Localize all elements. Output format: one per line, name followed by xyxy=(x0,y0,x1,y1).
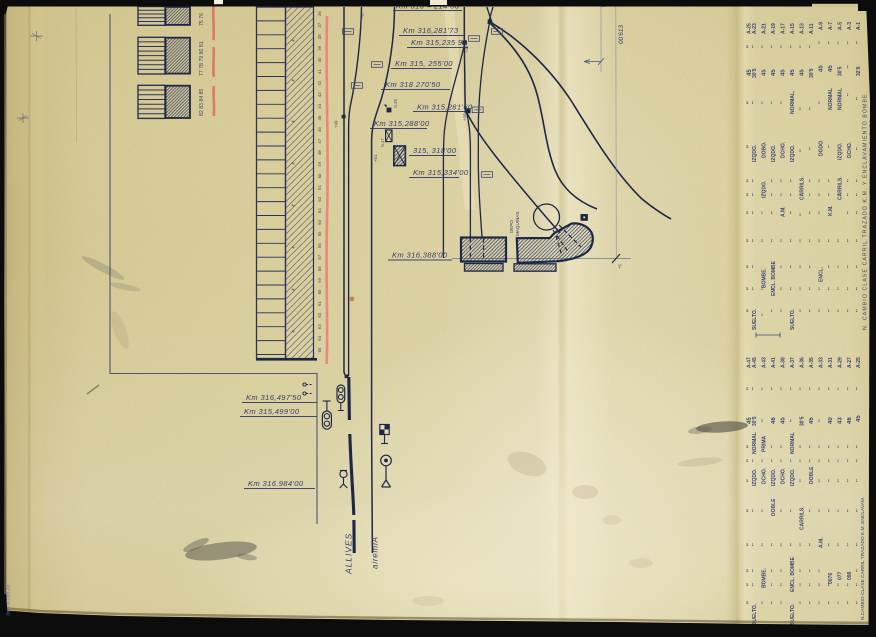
svg-text:30'5: 30'5 xyxy=(799,416,805,426)
svg-text:+5: +5 xyxy=(618,264,623,269)
svg-text:″: ″ xyxy=(819,193,825,196)
svg-text:43: 43 xyxy=(317,92,322,97)
svg-text:″: ″ xyxy=(747,543,753,546)
svg-text:″: ″ xyxy=(752,45,758,48)
svg-text:″: ″ xyxy=(800,459,806,462)
svg-text:″: ″ xyxy=(828,445,834,448)
svg-text:″: ″ xyxy=(781,239,787,242)
svg-text:″: ″ xyxy=(747,459,753,462)
svg-text:44: 44 xyxy=(317,103,322,108)
svg-text:″: ″ xyxy=(747,179,753,182)
svg-text:″: ″ xyxy=(762,419,768,422)
svg-text:DOBO.: DOBO. xyxy=(761,141,767,158)
svg-text:A-31: A-31 xyxy=(828,357,834,368)
svg-text:+43: +43 xyxy=(360,12,365,20)
svg-text:″: ″ xyxy=(838,479,844,482)
svg-text:″: ″ xyxy=(790,211,796,214)
svg-text:″: ″ xyxy=(847,65,853,68)
svg-text:″: ″ xyxy=(800,149,806,152)
svg-text:″: ″ xyxy=(752,211,758,214)
svg-text:″: ″ xyxy=(747,509,753,512)
svg-text:54: 54 xyxy=(317,219,322,224)
svg-text:A-3: A-3 xyxy=(847,22,853,30)
svg-text:″: ″ xyxy=(819,601,825,604)
svg-text:″: ″ xyxy=(828,583,834,586)
svg-text:″: ″ xyxy=(847,211,853,214)
svg-text:30'5: 30'5 xyxy=(837,66,843,76)
svg-text:″: ″ xyxy=(790,509,796,512)
svg-text:″: ″ xyxy=(856,193,862,196)
svg-text:″: ″ xyxy=(819,211,825,214)
svg-text:A-38: A-38 xyxy=(780,357,786,368)
svg-text:″: ″ xyxy=(847,583,853,586)
svg-text:″: ″ xyxy=(828,509,834,512)
svg-text:″: ″ xyxy=(838,601,844,604)
svg-text:″: ″ xyxy=(800,543,806,546)
svg-text:A-47: A-47 xyxy=(747,357,753,368)
svg-text:A-43: A-43 xyxy=(761,357,767,368)
svg-text:″: ″ xyxy=(800,309,806,312)
svg-text:″: ″ xyxy=(771,211,777,214)
svg-text:″: ″ xyxy=(809,45,815,48)
svg-text:″: ″ xyxy=(847,287,853,290)
svg-text:56: 56 xyxy=(317,243,322,248)
svg-text:75 76: 75 76 xyxy=(199,13,205,26)
svg-text:″: ″ xyxy=(752,265,758,268)
svg-text:Km 316,497'50: Km 316,497'50 xyxy=(246,393,302,402)
svg-text:″: ″ xyxy=(819,179,825,182)
svg-text:A-9: A-9 xyxy=(818,22,824,30)
svg-text:″: ″ xyxy=(762,193,768,196)
svg-text:A-36: A-36 xyxy=(799,357,805,368)
svg-text:″: ″ xyxy=(771,601,777,604)
svg-text:″: ″ xyxy=(771,543,777,546)
svg-text:″: ″ xyxy=(828,387,834,390)
svg-text:45: 45 xyxy=(747,69,753,76)
svg-text:Km 318 270'50: Km 318 270'50 xyxy=(385,80,441,89)
svg-text:Km 315,499'00: Km 315,499'00 xyxy=(244,407,300,416)
svg-text:″: ″ xyxy=(856,287,862,290)
svg-text:″: ″ xyxy=(847,309,853,312)
svg-text:″: ″ xyxy=(781,309,787,312)
svg-text:A-29: A-29 xyxy=(837,357,843,368)
svg-text:″: ″ xyxy=(781,569,787,572)
svg-text:A-45: A-45 xyxy=(752,357,758,368)
svg-text:″: ″ xyxy=(819,101,825,104)
svg-text:″: ″ xyxy=(819,239,825,242)
svg-text:098: 098 xyxy=(847,571,853,580)
svg-text:A-1: A-1 xyxy=(856,22,862,30)
svg-text:″: ″ xyxy=(771,309,777,312)
svg-text:″: ″ xyxy=(856,41,862,44)
svg-text:″: ″ xyxy=(747,309,753,312)
svg-text:″: ″ xyxy=(838,239,844,242)
svg-text:″: ″ xyxy=(847,479,853,482)
svg-text:″: ″ xyxy=(771,445,777,448)
svg-text:315, 318'00: 315, 318'00 xyxy=(413,146,457,155)
svg-text:Km 315, 255'00: Km 315, 255'00 xyxy=(395,59,453,68)
svg-text:45: 45 xyxy=(809,417,815,424)
svg-text:Km 316,388'00: Km 316,388'00 xyxy=(392,251,448,260)
svg-text:″: ″ xyxy=(838,387,844,390)
svg-text:″: ″ xyxy=(762,387,768,390)
svg-text:A-13: A-13 xyxy=(799,23,805,34)
svg-text:″: ″ xyxy=(847,239,853,242)
svg-text:SUELTO.: SUELTO. xyxy=(790,308,796,330)
svg-text:Km 316.984'00: Km 316.984'00 xyxy=(248,479,304,488)
svg-text:″: ″ xyxy=(762,313,768,316)
svg-text:A-7: A-7 xyxy=(828,22,834,30)
svg-text:37: 37 xyxy=(317,22,322,27)
svg-text:″: ″ xyxy=(809,309,815,312)
svg-text:″: ″ xyxy=(790,45,796,48)
svg-text:″: ″ xyxy=(790,583,796,586)
svg-text:Km 315,288'00: Km 315,288'00 xyxy=(374,119,430,128)
svg-text:″: ″ xyxy=(762,601,768,604)
svg-text:″: ″ xyxy=(771,101,777,104)
svg-text:49: 49 xyxy=(317,161,322,166)
svg-text:45: 45 xyxy=(747,417,753,424)
svg-text:″: ″ xyxy=(752,193,758,196)
svg-text:″: ″ xyxy=(828,543,834,546)
svg-text:3mo N.286-2a: 3mo N.286-2a xyxy=(5,585,11,616)
svg-text:″: ″ xyxy=(856,179,862,182)
svg-text:DCHO.: DCHO. xyxy=(780,141,786,158)
svg-text:″: ″ xyxy=(819,309,825,312)
svg-text:45: 45 xyxy=(790,69,796,76)
svg-text:30'5: 30'5 xyxy=(809,68,815,78)
svg-text:″: ″ xyxy=(762,211,768,214)
svg-text:45: 45 xyxy=(781,417,787,424)
svg-text:″: ″ xyxy=(856,265,862,268)
svg-text:″: ″ xyxy=(800,445,806,448)
svg-text:58: 58 xyxy=(317,266,322,271)
svg-text:″: ″ xyxy=(747,101,753,104)
svg-text:39: 39 xyxy=(317,45,322,50)
svg-text:A-33: A-33 xyxy=(818,357,824,368)
svg-text:″: ″ xyxy=(752,543,758,546)
svg-text:DOBLE: DOBLE xyxy=(809,466,815,484)
svg-text:″: ″ xyxy=(819,583,825,586)
svg-text:″: ″ xyxy=(747,445,753,448)
svg-text:A.M.: A.M. xyxy=(780,206,786,217)
svg-text:″: ″ xyxy=(771,179,777,182)
svg-text:″: ″ xyxy=(800,601,806,604)
svg-text:PRIMA: PRIMA xyxy=(761,436,767,453)
svg-text:″: ″ xyxy=(747,387,753,390)
svg-text:″: ″ xyxy=(809,387,815,390)
svg-text:″: ″ xyxy=(781,459,787,462)
svg-text:″: ″ xyxy=(828,309,834,312)
svg-text:″: ″ xyxy=(752,179,758,182)
svg-text:″: ″ xyxy=(800,107,806,110)
svg-text:36: 36 xyxy=(317,11,322,16)
svg-text:53: 53 xyxy=(317,208,322,213)
svg-text:″: ″ xyxy=(800,287,806,290)
svg-text:″: ″ xyxy=(856,97,862,100)
svg-text:″: ″ xyxy=(781,287,787,290)
svg-text:″: ″ xyxy=(790,459,796,462)
svg-text:″: ″ xyxy=(762,583,768,586)
svg-text:A-23: A-23 xyxy=(752,23,758,34)
svg-text:″: ″ xyxy=(828,145,834,148)
svg-text:″: ″ xyxy=(856,239,862,242)
svg-text:″: ″ xyxy=(771,387,777,390)
svg-text:″: ″ xyxy=(800,387,806,390)
svg-text:″: ″ xyxy=(781,193,787,196)
svg-text:″: ″ xyxy=(809,583,815,586)
svg-text:″: ″ xyxy=(800,213,806,216)
svg-text:51: 51 xyxy=(317,185,322,190)
svg-text:″: ″ xyxy=(800,193,806,196)
svg-text:″: ″ xyxy=(809,193,815,196)
svg-text:″: ″ xyxy=(838,509,844,512)
svg-text:45: 45 xyxy=(781,69,787,76)
svg-text:″: ″ xyxy=(856,387,862,390)
svg-text:62: 62 xyxy=(317,312,322,317)
svg-text:″: ″ xyxy=(809,601,815,604)
svg-text:″: ″ xyxy=(800,479,806,482)
svg-text:A-41: A-41 xyxy=(771,357,777,368)
svg-text:″: ″ xyxy=(809,569,815,572)
svg-text:50: 50 xyxy=(317,173,322,178)
svg-text:A-25: A-25 xyxy=(856,357,862,368)
svg-text:″: ″ xyxy=(809,287,815,290)
svg-text:+51: +51 xyxy=(373,154,378,162)
svg-text:45: 45 xyxy=(771,69,777,76)
svg-text:63: 63 xyxy=(317,324,322,329)
svg-text:N.CAMBIO CLASE CARRIL TRAZA: N.CAMBIO CLASE CARRIL TRAZADO K.M. ENCLA… xyxy=(860,497,866,620)
svg-text:82 83 84 85: 82 83 84 85 xyxy=(199,88,205,116)
svg-text:″: ″ xyxy=(847,265,853,268)
svg-text:″: ″ xyxy=(838,265,844,268)
svg-text:A-19: A-19 xyxy=(771,23,777,34)
svg-text:A-27: A-27 xyxy=(847,357,853,368)
svg-text:64: 64 xyxy=(317,335,322,340)
svg-text:″: ″ xyxy=(762,45,768,48)
svg-text:Km 316,281'73: Km 316,281'73 xyxy=(403,26,459,35)
svg-text:″: ″ xyxy=(819,479,825,482)
svg-text:48: 48 xyxy=(317,150,322,155)
svg-text:″: ″ xyxy=(771,583,777,586)
svg-text:″: ″ xyxy=(747,601,753,604)
svg-text:DCHO.: DCHO. xyxy=(847,141,853,158)
svg-text:″: ″ xyxy=(819,509,825,512)
svg-text:″: ″ xyxy=(828,287,834,290)
svg-text:47: 47 xyxy=(317,138,322,143)
svg-text:45: 45 xyxy=(819,65,825,72)
svg-text:″: ″ xyxy=(781,543,787,546)
svg-text:45: 45 xyxy=(317,115,322,120)
svg-text:57: 57 xyxy=(317,254,322,259)
svg-text:Km 315,235 98: Km 315,235 98 xyxy=(411,38,467,47)
svg-text:″: ″ xyxy=(771,459,777,462)
svg-text:″: ″ xyxy=(800,583,806,586)
svg-text:77 78 79 80 81: 77 78 79 80 81 xyxy=(199,41,205,76)
svg-text:″: ″ xyxy=(800,569,806,572)
svg-text:″: ″ xyxy=(762,459,768,462)
svg-text:″: ″ xyxy=(752,569,758,572)
svg-text:″: ″ xyxy=(790,387,796,390)
svg-text:0076: 0076 xyxy=(828,573,834,584)
svg-text:ENCL.: ENCL. xyxy=(818,266,824,282)
svg-text:″: ″ xyxy=(752,239,758,242)
svg-text:″: ″ xyxy=(819,459,825,462)
svg-text:″: ″ xyxy=(838,41,844,44)
svg-text:″: ″ xyxy=(781,583,787,586)
svg-text:″: ″ xyxy=(847,193,853,196)
svg-text:45: 45 xyxy=(762,69,768,76)
svg-text:″: ″ xyxy=(771,287,777,290)
svg-text:DOBLE: DOBLE xyxy=(771,498,777,516)
svg-text:DCHO.: DCHO. xyxy=(780,467,786,484)
svg-text:″: ″ xyxy=(800,239,806,242)
svg-text:″: ″ xyxy=(838,583,844,586)
svg-text:52: 52 xyxy=(317,196,322,201)
svg-text:BOMBE.: BOMBE. xyxy=(761,267,767,288)
svg-text:″: ″ xyxy=(762,509,768,512)
svg-text:″: ″ xyxy=(747,211,753,214)
svg-text:″: ″ xyxy=(747,583,753,586)
svg-text:A-17: A-17 xyxy=(780,23,786,34)
svg-text:CARRILS.: CARRILS. xyxy=(799,506,805,530)
svg-text:IZQDO.: IZQDO. xyxy=(790,468,796,486)
svg-text:″: ″ xyxy=(819,569,825,572)
svg-text:″: ″ xyxy=(828,479,834,482)
svg-text:″: ″ xyxy=(809,107,815,110)
svg-text:″: ″ xyxy=(856,445,862,448)
svg-text:″: ″ xyxy=(790,179,796,182)
svg-text:″: ″ xyxy=(838,543,844,546)
svg-text:A-15: A-15 xyxy=(790,23,796,34)
svg-text:40: 40 xyxy=(317,57,322,62)
svg-text:″: ″ xyxy=(819,387,825,390)
svg-text:″: ″ xyxy=(819,287,825,290)
svg-text:45: 45 xyxy=(856,415,862,422)
svg-text:″: ″ xyxy=(838,309,844,312)
svg-text:″: ″ xyxy=(781,265,787,268)
svg-text:″: ″ xyxy=(856,147,862,150)
svg-text:NORMAL: NORMAL xyxy=(752,432,758,454)
svg-text:43: 43 xyxy=(838,417,844,424)
svg-text:″: ″ xyxy=(752,101,758,104)
svg-text:″: ″ xyxy=(838,459,844,462)
svg-text:N.45: N.45 xyxy=(393,98,398,108)
svg-text:″: ″ xyxy=(828,459,834,462)
svg-text:40: 40 xyxy=(828,417,834,424)
svg-text:A.M.: A.M. xyxy=(818,537,824,548)
svg-text:″: ″ xyxy=(747,265,753,268)
svg-text:″: ″ xyxy=(747,45,753,48)
svg-text:41: 41 xyxy=(317,69,322,74)
svg-text:IZQDO.: IZQDO. xyxy=(837,142,843,160)
svg-text:″: ″ xyxy=(809,445,815,448)
svg-text:″: ″ xyxy=(809,211,815,214)
svg-text:″: ″ xyxy=(819,445,825,448)
svg-text:″: ″ xyxy=(762,239,768,242)
svg-text:″: ″ xyxy=(819,419,825,422)
svg-text:″: ″ xyxy=(790,239,796,242)
svg-text:Km 315,281'60: Km 315,281'60 xyxy=(417,103,473,112)
svg-text:″: ″ xyxy=(809,543,815,546)
svg-text:DCHO.: DCHO. xyxy=(761,467,767,484)
svg-text:A-37: A-37 xyxy=(790,357,796,368)
svg-text:″: ″ xyxy=(781,601,787,604)
svg-text:″: ″ xyxy=(781,45,787,48)
svg-text:″: ″ xyxy=(771,45,777,48)
svg-text:A-21: A-21 xyxy=(761,23,767,34)
svg-text:A-11: A-11 xyxy=(809,23,815,34)
svg-text:″: ″ xyxy=(747,239,753,242)
svg-text:DEPO: DEPO xyxy=(509,220,514,233)
svg-text:″: ″ xyxy=(747,287,753,290)
svg-text:+49: +49 xyxy=(334,120,339,128)
svg-text:A-5: A-5 xyxy=(837,22,843,30)
svg-text:″: ″ xyxy=(819,41,825,44)
svg-text:65: 65 xyxy=(317,347,322,352)
svg-text:″: ″ xyxy=(800,45,806,48)
svg-text:″: ″ xyxy=(790,265,796,268)
svg-text:″: ″ xyxy=(847,543,853,546)
svg-text:″: ″ xyxy=(800,265,806,268)
svg-text:″: ″ xyxy=(847,387,853,390)
svg-text:00'613: 00'613 xyxy=(618,25,625,44)
svg-text:32'6: 32'6 xyxy=(856,66,862,76)
svg-text:″: ″ xyxy=(856,211,862,214)
svg-text:″: ″ xyxy=(762,543,768,546)
svg-text:″: ″ xyxy=(752,287,758,290)
svg-text:″: ″ xyxy=(747,193,753,196)
svg-text:″: ″ xyxy=(747,479,753,482)
svg-text:NORMAL: NORMAL xyxy=(828,88,834,110)
svg-text:″: ″ xyxy=(847,179,853,182)
svg-text:+44: +44 xyxy=(462,113,467,121)
svg-text:″: ″ xyxy=(828,265,834,268)
svg-text:″: ″ xyxy=(847,601,853,604)
svg-text:42: 42 xyxy=(317,80,322,85)
svg-text:″: ″ xyxy=(828,239,834,242)
svg-text:IZQDO.: IZQDO. xyxy=(771,144,777,162)
svg-text:45: 45 xyxy=(828,65,834,72)
svg-text:″: ″ xyxy=(809,509,815,512)
svg-text:ALLIVES: ALLIVES xyxy=(344,533,354,575)
svg-text:Km 315,334'00: Km 315,334'00 xyxy=(413,168,469,177)
svg-text:″: ″ xyxy=(847,445,853,448)
svg-text:″: ″ xyxy=(781,509,787,512)
svg-text:N.47: N.47 xyxy=(380,137,385,147)
svg-text:A-25: A-25 xyxy=(747,23,753,34)
svg-text:NORMAL: NORMAL xyxy=(790,432,796,454)
svg-text:MAQUINAS: MAQUINAS xyxy=(515,211,520,236)
svg-text:″: ″ xyxy=(781,101,787,104)
svg-text:″: ″ xyxy=(838,445,844,448)
svg-text:″: ″ xyxy=(847,93,853,96)
svg-text:″: ″ xyxy=(747,145,753,148)
svg-text:46: 46 xyxy=(847,417,853,424)
svg-text:″: ″ xyxy=(790,543,796,546)
svg-text:″: ″ xyxy=(809,459,815,462)
svg-text:″: ″ xyxy=(790,287,796,290)
svg-text:″: ″ xyxy=(790,419,796,422)
svg-text:077: 077 xyxy=(837,571,843,580)
svg-text:″: ″ xyxy=(771,569,777,572)
svg-text:55: 55 xyxy=(317,231,322,236)
svg-text:IZQDO.: IZQDO. xyxy=(790,144,796,162)
svg-text:airemlA: airemlA xyxy=(370,536,379,569)
svg-text:K.M.: K.M. xyxy=(828,205,834,216)
svg-text:″: ″ xyxy=(752,387,758,390)
svg-text:″: ″ xyxy=(790,193,796,196)
